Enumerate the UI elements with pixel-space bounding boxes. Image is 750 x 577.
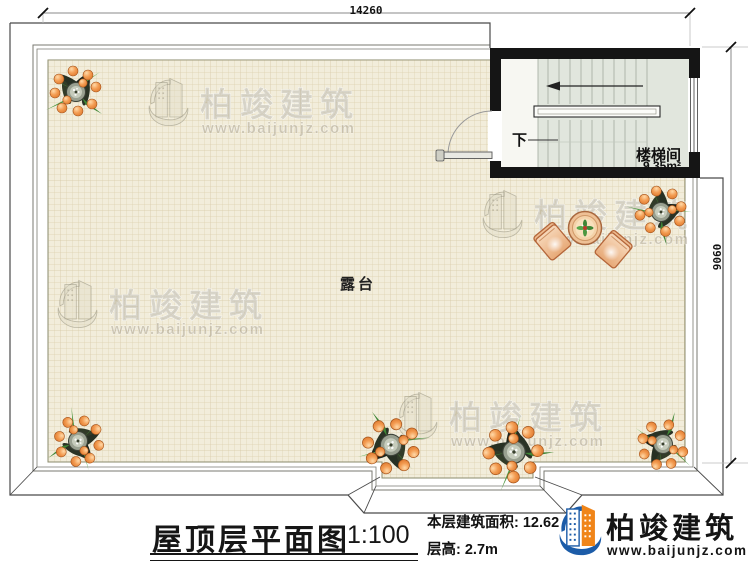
svg-text:www.baijunjz.com: www.baijunjz.com <box>110 321 264 338</box>
stair-railing <box>534 106 660 117</box>
door-handle-icon <box>436 150 444 161</box>
terrace-label: 露台 <box>340 273 376 294</box>
roof-floor-plan-sheet: 柏竣建筑 www.baijunjz.com 柏竣建筑 www.baijunjz.… <box>0 0 750 577</box>
svg-text:柏竣建筑: 柏竣建筑 <box>200 86 360 123</box>
floor-area-note: 本层建筑面积: 12.62 <box>427 511 559 532</box>
company-website: www.baijunjz.com <box>607 543 748 558</box>
floor-height-note: 层高: 2.7m <box>427 538 498 559</box>
company-name: 柏竣建筑 <box>606 505 738 547</box>
stair-window <box>688 78 700 152</box>
company-logo-icon <box>556 502 604 560</box>
door-leaf <box>444 152 492 159</box>
stairwell-area-label: 9.35m² <box>643 159 681 173</box>
dimension-top-value: 14260 <box>338 4 394 17</box>
round-table <box>569 212 602 245</box>
svg-text:柏竣建筑: 柏竣建筑 <box>109 287 269 324</box>
title-underline <box>150 553 418 561</box>
svg-text:www.baijunjz.com: www.baijunjz.com <box>201 120 355 137</box>
drawing-scale: 1:100 <box>347 521 410 550</box>
dimension-right-value: 9060 <box>711 227 725 287</box>
stair-down-label: 下 <box>512 129 527 150</box>
dimension-right <box>702 42 748 468</box>
